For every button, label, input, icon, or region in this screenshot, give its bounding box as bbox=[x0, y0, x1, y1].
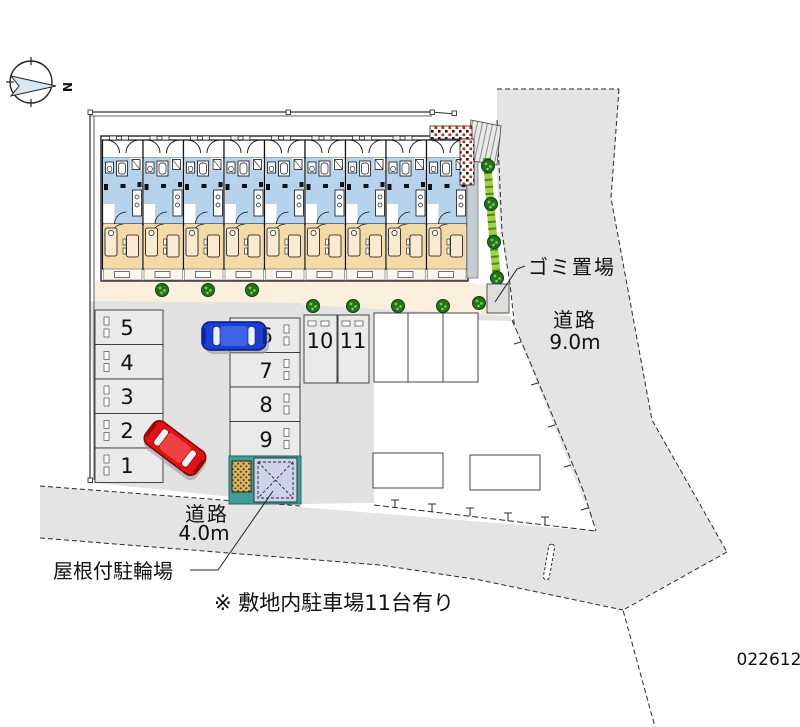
car-blue bbox=[202, 322, 269, 354]
site-plan: 5 4 3 2 1 6 7 8 9 10 11 bbox=[0, 0, 800, 727]
stall-number-5: 5 bbox=[120, 316, 133, 340]
stall-number-9: 9 bbox=[259, 428, 272, 452]
stall-number-3: 3 bbox=[120, 385, 133, 409]
compass: N bbox=[6, 57, 74, 107]
stall-number-1: 1 bbox=[120, 454, 133, 478]
site-plan-canvas: 5 4 3 2 1 6 7 8 9 10 11 bbox=[0, 0, 800, 727]
label-drawing-number: 022612 bbox=[737, 650, 800, 670]
label-garbage-area: ゴミ置場 bbox=[528, 255, 616, 279]
label-road-east-name: 道路 bbox=[553, 308, 597, 332]
label-road-east-width: 9.0m bbox=[549, 330, 600, 354]
stall-number-10: 10 bbox=[307, 329, 334, 353]
label-site-note: ※ 敷地内駐車場11台有り bbox=[214, 591, 454, 615]
label-covered-bicycle-parking: 屋根付駐輪場 bbox=[53, 559, 173, 583]
stall-number-7: 7 bbox=[259, 359, 272, 383]
stall-number-8: 8 bbox=[259, 393, 272, 417]
stall-number-4: 4 bbox=[120, 351, 133, 375]
stall-number-2: 2 bbox=[120, 419, 133, 443]
stall-number-11: 11 bbox=[340, 329, 367, 353]
apartment-building bbox=[101, 136, 478, 281]
label-road-south-width: 4.0m bbox=[178, 521, 229, 545]
compass-north-label: N bbox=[60, 82, 74, 92]
